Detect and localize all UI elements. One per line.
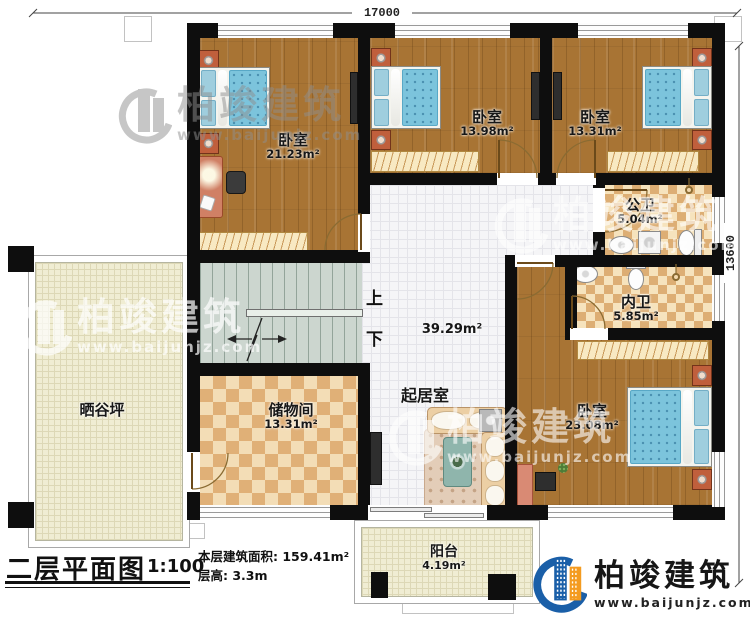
- room-label-bedroom-tm: 卧室 13.98m²: [447, 109, 527, 138]
- brand-logo: 柏竣建筑 www.baijunjz.com: [533, 556, 750, 614]
- dimension-height: 13600: [724, 223, 738, 283]
- room-label-storage: 储物间 13.31m²: [251, 402, 331, 431]
- floor-plan-canvas: 17000 13600 卧室 21.23m² 卧室 13.98m² 卧室 13.…: [0, 0, 750, 625]
- plan-height-line: 层高: 3.3m: [198, 566, 349, 585]
- room-label-ensuite-bath: 内卫 5.85m²: [596, 294, 676, 323]
- room-label-public-bath: 公卫 5.04m²: [600, 197, 680, 226]
- room-label-bedroom-br: 卧室 23.08m²: [552, 403, 632, 432]
- room-label-living-area: 39.29m²: [410, 323, 494, 337]
- title-underline-thin: [5, 587, 190, 588]
- plan-area-line: 本层建筑面积: 159.41m²: [198, 547, 349, 566]
- stair-break-line: [234, 318, 280, 361]
- brand-website: www.baijunjz.com: [594, 595, 750, 610]
- stair-up-label: 上: [366, 284, 383, 309]
- room-label-balcony: 阳台 4.19m²: [402, 545, 486, 572]
- door-leaves: [192, 140, 647, 489]
- room-label-terrace: 晒谷坪: [60, 402, 144, 418]
- plan-scale: 1:100: [147, 556, 204, 577]
- room-label-bedroom-tr: 卧室 13.31m²: [555, 109, 635, 138]
- plan-info: 本层建筑面积: 159.41m² 层高: 3.3m: [198, 547, 349, 586]
- stair-down-label: 下: [366, 325, 383, 350]
- door-swing-arcs: [192, 140, 647, 489]
- title-underline-thick: [5, 581, 190, 584]
- room-label-living: 起居室: [383, 387, 467, 404]
- dimension-width: 17000: [352, 6, 412, 20]
- brand-name: 柏竣建筑: [594, 561, 750, 592]
- room-label-bedroom-tl: 卧室 21.23m²: [253, 132, 333, 161]
- building-swoosh-logo-icon: [533, 556, 587, 614]
- light-cords: [676, 178, 689, 274]
